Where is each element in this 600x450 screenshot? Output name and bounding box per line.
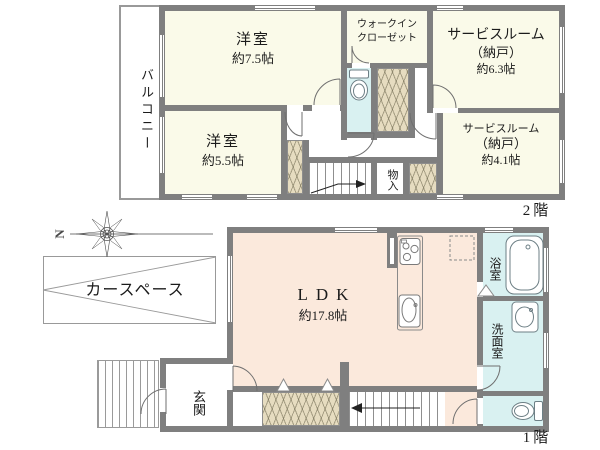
service63-size: 約6.3帖 xyxy=(433,62,559,78)
stairs-1f-arrow xyxy=(351,403,362,413)
sliding-door-mark-1 xyxy=(277,379,290,391)
door-arc-entrance xyxy=(141,389,166,414)
room75-size: 約7.5帖 xyxy=(165,51,341,68)
service63-label: サービスルーム （納戸） 約6.3帖 xyxy=(433,27,559,78)
toilet-1f-tank xyxy=(535,402,543,421)
door-arc-wic xyxy=(352,46,369,63)
door-arc-service63 xyxy=(433,85,456,108)
bath-label: 浴室 xyxy=(487,246,502,292)
floor1-label: 1階 xyxy=(507,429,567,449)
compass-north-label: N xyxy=(52,229,67,239)
service41-alt: （納戸） xyxy=(443,136,559,153)
room75-name: 洋室 xyxy=(165,31,341,51)
car-space-label: カースペース xyxy=(55,281,215,302)
service63-alt: （納戸） xyxy=(433,45,559,62)
sliding-door-mark-2 xyxy=(321,379,334,391)
wic-line1: ウォークイン xyxy=(347,18,427,32)
toilet-2f-tank xyxy=(350,70,369,78)
wic-line2: クローゼット xyxy=(347,32,427,46)
ldk-size: 約17.8帖 xyxy=(233,308,413,325)
storage-label: 物入 xyxy=(381,166,399,193)
stairs-2f-line xyxy=(311,184,356,193)
service63-name: サービスルーム xyxy=(433,27,559,45)
door-arc-entrance-ldk xyxy=(233,366,257,391)
floor-plan: バルコニー 洋室 約7.5帖 ウォークイン クロー xyxy=(0,0,600,450)
room55-name: 洋室 xyxy=(165,133,281,153)
ldk-label: LDK 約17.8帖 xyxy=(233,284,413,325)
floor2-label: 2階 xyxy=(507,202,567,222)
door-arc-room75 xyxy=(314,79,340,105)
service41-name: サービスルーム xyxy=(443,122,559,136)
room75-label: 洋室 約7.5帖 xyxy=(165,31,341,67)
compass-icon: N xyxy=(52,211,213,257)
balcony-label: バルコニー xyxy=(126,50,154,170)
wash-sink-icon xyxy=(512,302,538,332)
service41-size: 約4.1帖 xyxy=(443,153,559,169)
wic-label: ウォークイン クローゼット xyxy=(347,18,427,46)
toilet-2f-icon xyxy=(350,70,369,100)
ldk-name: LDK xyxy=(233,284,413,306)
door-arc-hall-2f xyxy=(348,133,374,157)
service41-label: サービスルーム （納戸） 約4.1帖 xyxy=(443,122,559,169)
stairs-2f-arrow xyxy=(356,180,366,188)
entrance-label: 玄関 xyxy=(189,383,206,423)
door-arc-service41 xyxy=(410,113,436,139)
washroom-label: 洗面室 xyxy=(489,306,504,376)
door-arc-room55 xyxy=(285,112,302,136)
room55-size: 約5.5帖 xyxy=(165,153,281,170)
toilet-1f-icon xyxy=(512,402,543,421)
door-arc-toilet-1f xyxy=(453,399,477,424)
refrigerator-space xyxy=(450,236,474,260)
bathtub-icon xyxy=(506,236,543,294)
room55-label: 洋室 約5.5帖 xyxy=(165,133,281,169)
toilet-1f-bowl xyxy=(512,403,534,420)
